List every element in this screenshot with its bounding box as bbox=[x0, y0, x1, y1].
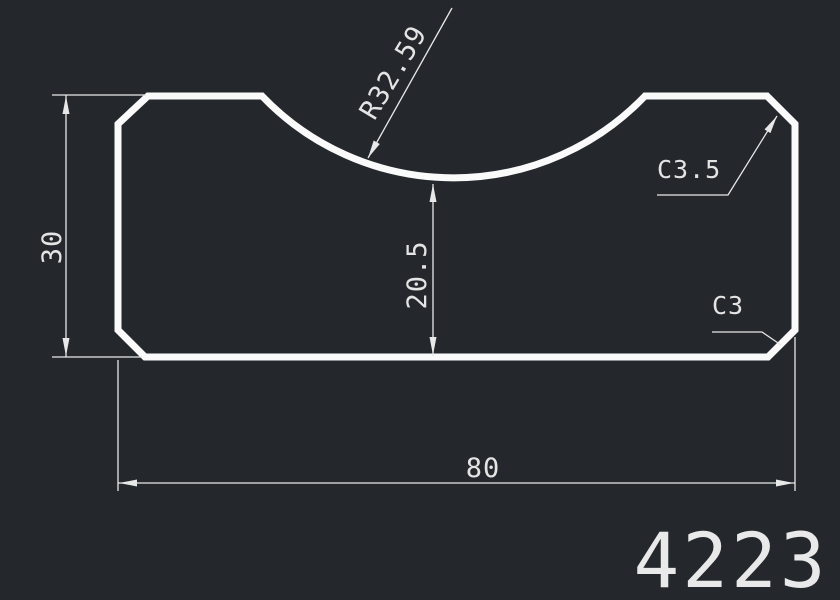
chamfer-bottom-leader bbox=[712, 332, 781, 345]
radius-label: R32.59 bbox=[354, 20, 434, 125]
width-dim-label: 80 bbox=[466, 453, 501, 484]
chamfer-top-leader-arrow bbox=[764, 114, 779, 133]
height-dim-arrow-down bbox=[63, 338, 70, 356]
cad-drawing-canvas: 30 20.5 80 R32.59 C3.5 C3 4223 bbox=[0, 0, 840, 600]
width-dim-arrow-left bbox=[119, 480, 137, 487]
chamfer-top-label: C3.5 bbox=[657, 155, 721, 184]
notch-dim-label: 20.5 bbox=[402, 240, 433, 309]
notch-dim-arrow-up bbox=[430, 184, 437, 202]
drawing-svg: 30 20.5 80 R32.59 C3.5 C3 4223 bbox=[0, 0, 840, 600]
profile-outline bbox=[118, 96, 795, 357]
radius-leader-arrow bbox=[365, 141, 380, 160]
chamfer-bottom-label: C3 bbox=[712, 291, 744, 320]
part-number-label: 4223 bbox=[633, 516, 828, 600]
notch-dim-arrow-down bbox=[430, 337, 437, 355]
height-dim-arrow-up bbox=[63, 96, 70, 114]
width-dim-arrow-right bbox=[776, 480, 794, 487]
height-dim-label: 30 bbox=[37, 230, 68, 265]
